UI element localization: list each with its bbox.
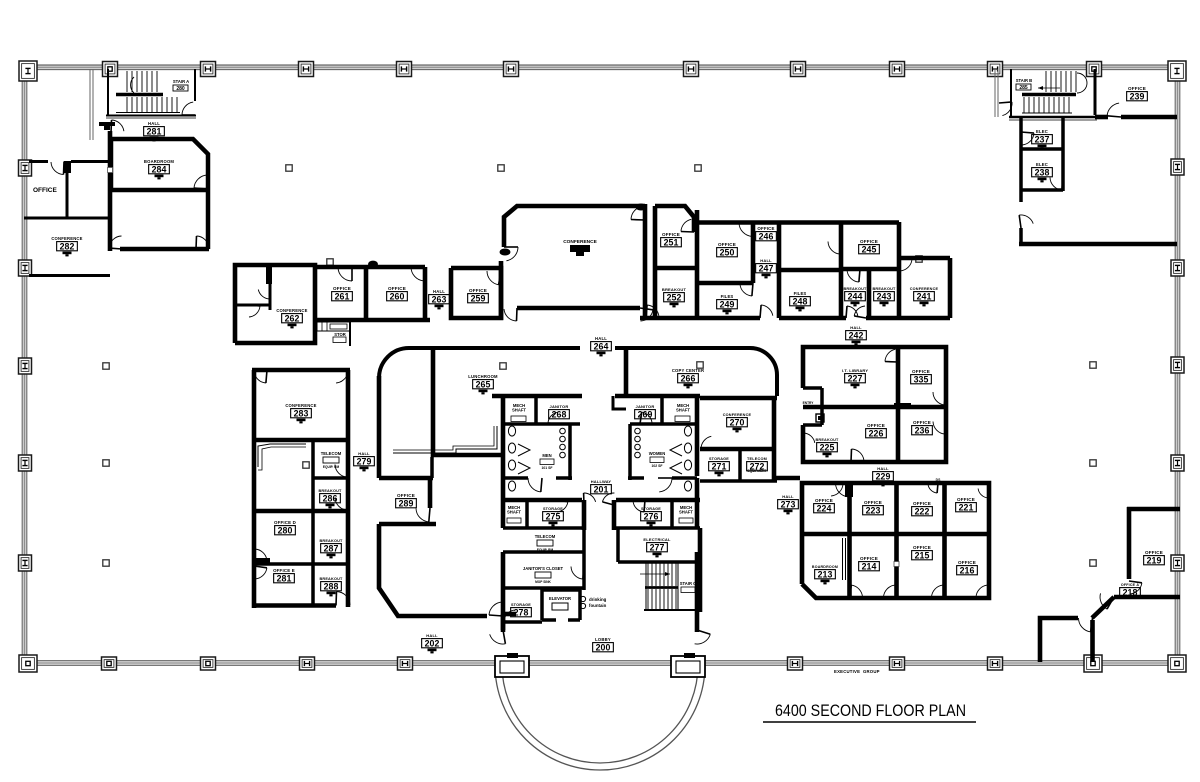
svg-text:221: 221	[959, 502, 974, 512]
svg-text:229: 229	[876, 471, 891, 481]
svg-text:HALL: HALL	[782, 494, 794, 499]
svg-text:EQUIPMENT: EQUIPMENT	[748, 469, 767, 473]
svg-text:270: 270	[730, 417, 745, 427]
svg-text:246: 246	[759, 231, 774, 241]
svg-text:HALL: HALL	[426, 633, 438, 638]
svg-text:OFFICE: OFFICE	[757, 226, 774, 231]
svg-text:OFFICE: OFFICE	[662, 232, 680, 237]
svg-text:282: 282	[60, 241, 75, 251]
svg-text:224: 224	[817, 503, 832, 513]
svg-text:280: 280	[176, 86, 185, 92]
svg-text:EQUIP. RM: EQUIP. RM	[323, 465, 340, 469]
svg-text:OFFICE: OFFICE	[333, 286, 351, 291]
svg-text:OFFICE: OFFICE	[1128, 86, 1146, 91]
svg-text:STOR: STOR	[334, 332, 346, 337]
svg-text:335: 335	[914, 374, 929, 384]
svg-text:HALL: HALL	[760, 258, 772, 263]
svg-text:260: 260	[390, 291, 405, 301]
svg-text:269: 269	[638, 409, 653, 419]
svg-text:SHAFT: SHAFT	[512, 408, 526, 413]
svg-text:HALL: HALL	[433, 289, 445, 294]
svg-text:250: 250	[720, 247, 735, 257]
svg-text:OFFICE: OFFICE	[913, 501, 931, 506]
svg-text:252: 252	[667, 292, 682, 302]
svg-text:241: 241	[917, 291, 932, 301]
svg-text:OFFICE: OFFICE	[912, 369, 930, 374]
svg-text:259: 259	[471, 293, 486, 303]
svg-text:227: 227	[848, 373, 863, 383]
svg-text:285: 285	[1019, 85, 1028, 91]
svg-text:268: 268	[552, 409, 567, 419]
svg-text:288: 288	[324, 581, 339, 591]
svg-text:223: 223	[866, 505, 881, 515]
svg-text:286: 286	[323, 493, 338, 503]
svg-text:OFFICE D: OFFICE D	[274, 520, 296, 525]
svg-text:TELECOM: TELECOM	[321, 451, 342, 456]
svg-text:ELEC: ELEC	[1036, 162, 1048, 167]
svg-text:279: 279	[357, 456, 372, 466]
svg-text:HALL: HALL	[148, 121, 160, 126]
svg-text:261: 261	[335, 291, 350, 301]
svg-text:251: 251	[664, 237, 679, 247]
svg-text:238: 238	[1035, 167, 1050, 177]
svg-text:219: 219	[1147, 555, 1162, 565]
svg-text:6400 SECOND FLOOR PLAN: 6400 SECOND FLOOR PLAN	[775, 701, 966, 720]
svg-text:237: 237	[1035, 134, 1050, 144]
svg-text:OFFICE: OFFICE	[469, 288, 487, 293]
svg-text:265: 265	[476, 379, 491, 389]
svg-text:MEN: MEN	[542, 453, 551, 458]
svg-text:JANITOR'S CLOSET: JANITOR'S CLOSET	[523, 566, 564, 571]
svg-text:262: 262	[285, 313, 300, 323]
svg-text:ELECTRICAL: ELECTRICAL	[643, 537, 671, 542]
svg-text:239: 239	[1130, 91, 1145, 101]
svg-text:214: 214	[862, 561, 877, 571]
svg-text:CONFERENCE: CONFERENCE	[285, 403, 316, 408]
svg-text:I.T. LIBRARY: I.T. LIBRARY	[842, 368, 869, 373]
svg-text:244: 244	[848, 291, 863, 301]
svg-text:277: 277	[650, 542, 665, 552]
svg-text:COPY CENTER: COPY CENTER	[672, 368, 704, 373]
svg-text:SHAFT: SHAFT	[679, 510, 693, 515]
svg-text:STAIR A: STAIR A	[173, 79, 189, 84]
svg-text:289: 289	[399, 498, 414, 508]
svg-text:CONFERENCE: CONFERENCE	[276, 308, 307, 313]
svg-text:OFFICE: OFFICE	[867, 423, 885, 428]
svg-text:ENTRY: ENTRY	[803, 401, 815, 405]
svg-text:OFFICE: OFFICE	[957, 497, 975, 502]
svg-text:SHAFT: SHAFT	[676, 408, 690, 413]
svg-text:OFFICE E: OFFICE E	[273, 568, 295, 573]
svg-text:HALL: HALL	[850, 325, 862, 330]
svg-text:OFFICE: OFFICE	[860, 556, 878, 561]
svg-text:OFFICE: OFFICE	[388, 286, 406, 291]
svg-text:216: 216	[960, 565, 975, 575]
svg-text:276: 276	[644, 511, 659, 521]
svg-text:283: 283	[294, 408, 309, 418]
svg-text:HALLWAY: HALLWAY	[591, 479, 612, 484]
svg-text:101 SF: 101 SF	[542, 466, 553, 470]
svg-text:287: 287	[324, 543, 339, 553]
svg-text:OFFICE: OFFICE	[958, 560, 976, 565]
svg-text:OFFICE: OFFICE	[815, 498, 833, 503]
svg-text:243: 243	[877, 291, 892, 301]
svg-text:fountain: fountain	[589, 603, 607, 608]
svg-text:273: 273	[781, 499, 796, 509]
svg-text:HALL: HALL	[358, 451, 370, 456]
svg-text:OFFICE: OFFICE	[33, 187, 57, 194]
svg-text:266: 266	[681, 373, 696, 383]
svg-text:OFFICE: OFFICE	[864, 500, 882, 505]
svg-text:215: 215	[915, 550, 930, 560]
svg-text:245: 245	[862, 244, 877, 254]
svg-text:102 SF: 102 SF	[652, 464, 663, 468]
svg-text:OFFICE: OFFICE	[860, 239, 878, 244]
svg-text:263: 263	[432, 294, 447, 304]
svg-text:236: 236	[915, 425, 930, 435]
svg-text:LOBBY: LOBBY	[595, 637, 611, 642]
svg-text:OFFICE: OFFICE	[1145, 550, 1163, 555]
svg-text:drinking: drinking	[589, 597, 607, 602]
svg-text:EQUIP. RM: EQUIP. RM	[537, 548, 554, 552]
svg-text:222: 222	[915, 506, 930, 516]
svg-text:FILES: FILES	[721, 294, 734, 299]
svg-text:202: 202	[425, 638, 440, 648]
svg-text:281: 281	[277, 573, 292, 583]
svg-text:225: 225	[820, 442, 835, 452]
svg-text:EXECUTIVE GROUP: EXECUTIVE GROUP	[834, 669, 880, 674]
svg-text:280: 280	[278, 525, 293, 535]
svg-text:BOARDROOM: BOARDROOM	[144, 159, 174, 164]
svg-text:247: 247	[759, 263, 774, 273]
svg-text:TELECOM: TELECOM	[535, 534, 556, 539]
svg-text:281: 281	[147, 126, 162, 136]
svg-text:CONFERENCE: CONFERENCE	[51, 236, 82, 241]
svg-text:STAIR B: STAIR B	[1016, 78, 1032, 83]
svg-text:264: 264	[594, 341, 609, 351]
svg-text:DS: DS	[936, 478, 941, 482]
svg-text:FILES: FILES	[794, 291, 807, 296]
svg-text:226: 226	[869, 428, 884, 438]
svg-text:271: 271	[712, 461, 727, 471]
svg-text:STAIR C: STAIR C	[680, 581, 696, 586]
svg-text:275: 275	[546, 511, 561, 521]
svg-text:HALL: HALL	[595, 336, 607, 341]
svg-text:248: 248	[793, 296, 808, 306]
svg-text:201: 201	[594, 484, 609, 494]
svg-text:LUNCHROOM: LUNCHROOM	[468, 374, 498, 379]
svg-text:HALL: HALL	[877, 466, 889, 471]
svg-text:OFFICE: OFFICE	[913, 420, 931, 425]
svg-text:MOP SINK: MOP SINK	[535, 580, 551, 584]
svg-text:OFFICE: OFFICE	[718, 242, 736, 247]
svg-text:ELEVATOR: ELEVATOR	[549, 596, 571, 601]
svg-text:JANITOR: JANITOR	[550, 404, 569, 409]
svg-text:213: 213	[818, 569, 833, 579]
svg-text:ELEC: ELEC	[1036, 129, 1048, 134]
svg-text:284: 284	[152, 164, 167, 174]
svg-text:JANITOR: JANITOR	[636, 404, 655, 409]
svg-text:SHAFT: SHAFT	[507, 510, 521, 515]
svg-text:OFFICE: OFFICE	[397, 493, 415, 498]
svg-text:OFFICE: OFFICE	[913, 545, 931, 550]
svg-text:200: 200	[596, 642, 611, 652]
svg-text:242: 242	[849, 330, 864, 340]
svg-text:BREAKOUT: BREAKOUT	[662, 287, 687, 292]
svg-text:WOMEN: WOMEN	[649, 451, 666, 456]
svg-text:CONFERENCE: CONFERENCE	[563, 239, 597, 245]
svg-text:249: 249	[720, 299, 735, 309]
